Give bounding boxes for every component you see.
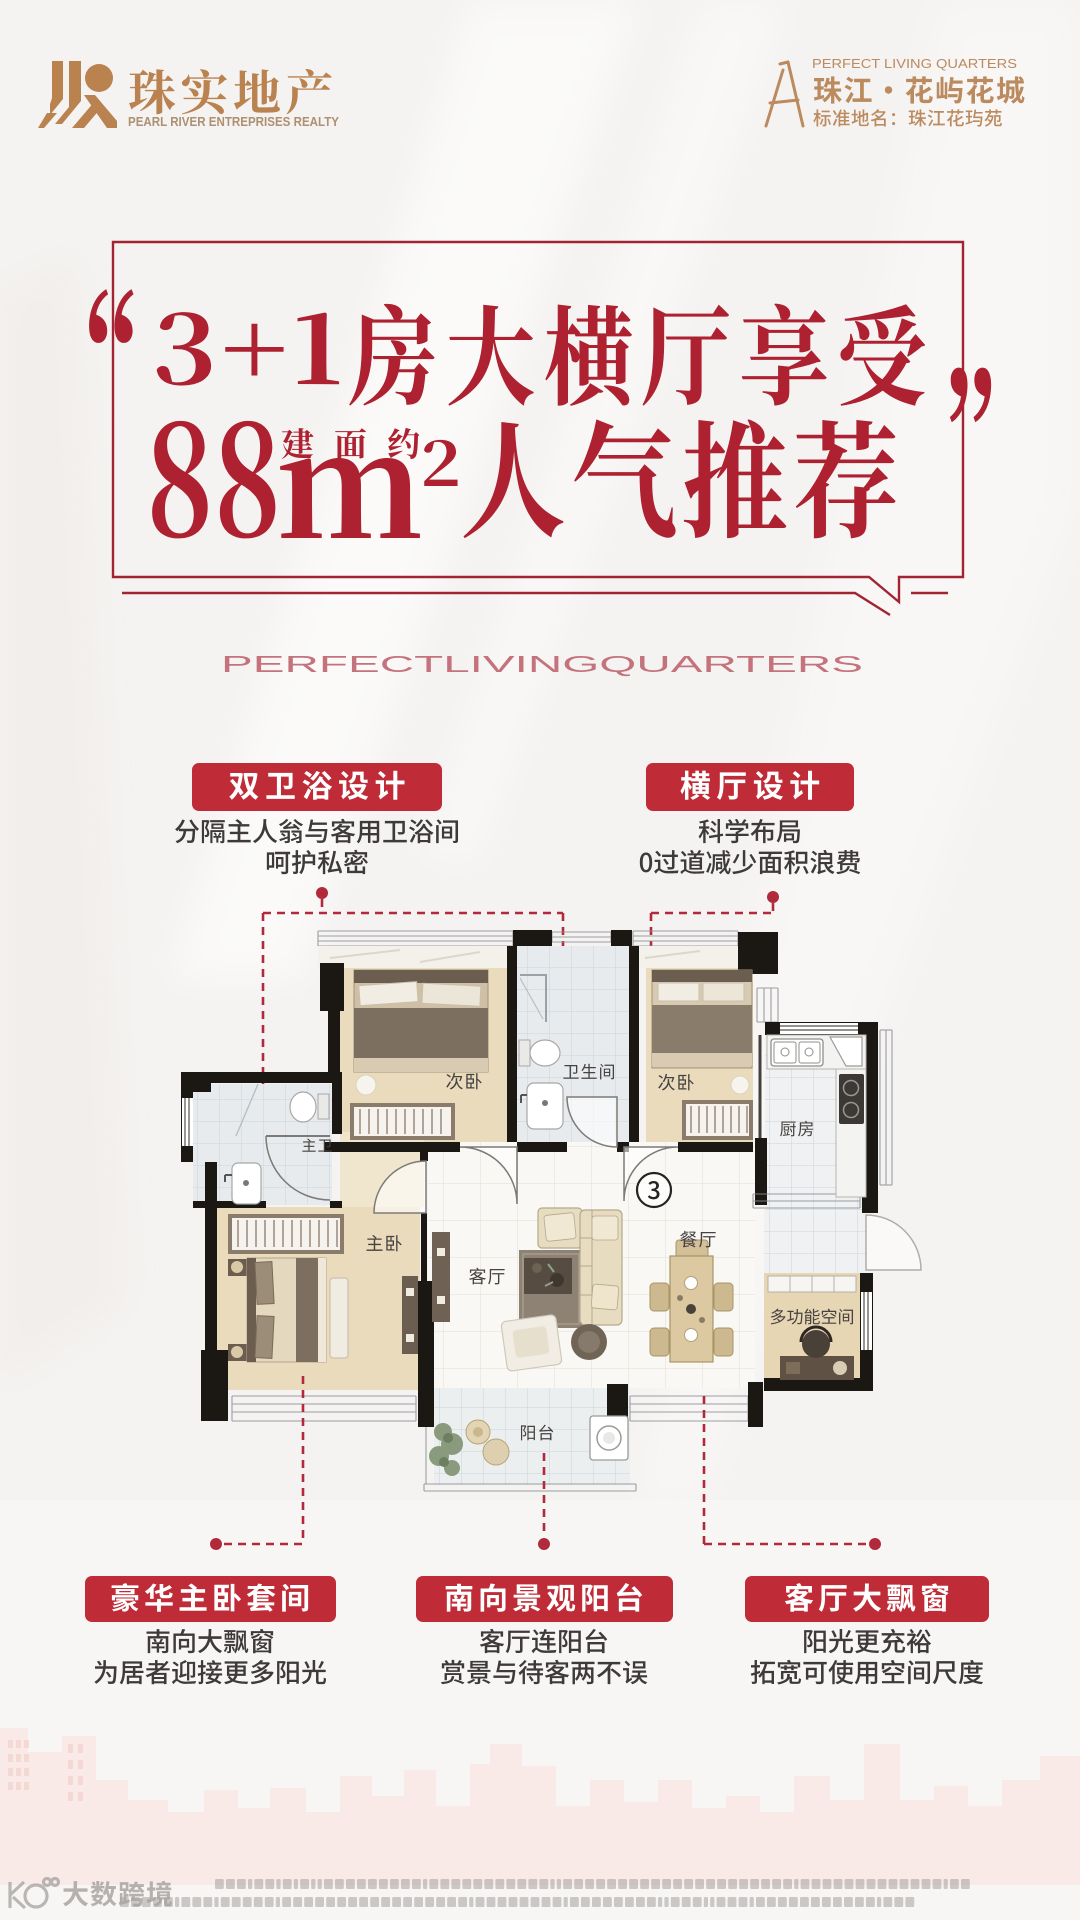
svg-text:PERFECT LIVING QUARTERS: PERFECT LIVING QUARTERS xyxy=(812,56,1017,71)
svg-text:PERFECTLIVINGQUARTERS: PERFECTLIVINGQUARTERS xyxy=(221,651,863,677)
svg-text:PEARL RIVER ENTREPRISES REALTY: PEARL RIVER ENTREPRISES REALTY xyxy=(128,115,340,129)
